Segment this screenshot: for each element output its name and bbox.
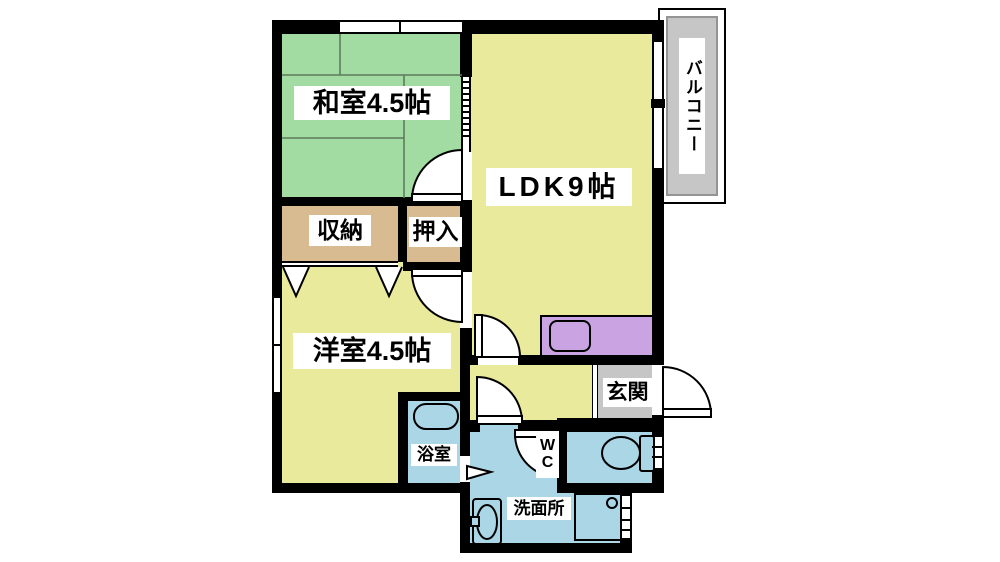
label-washitsu: 和室4.5帖 <box>294 86 450 120</box>
wall-washroom-bottom <box>460 543 632 553</box>
wall-closet-divider <box>398 198 407 262</box>
label-ldk: LDK9帖 <box>486 168 632 206</box>
label-oshiire: 押入 <box>409 217 462 247</box>
wall-hall-washroom-a <box>460 420 480 432</box>
kitchen-counter <box>540 315 654 357</box>
opening-ldk-hall-door <box>478 355 518 365</box>
genkan-threshold <box>592 362 598 418</box>
label-senmenjo: 洗面所 <box>507 497 571 520</box>
opening-washitsu-door <box>460 152 472 200</box>
wall-mid-vertical <box>460 362 470 543</box>
window-wc <box>652 437 664 468</box>
opening-bath-fold <box>460 456 470 482</box>
hallway <box>467 358 592 422</box>
window-youshitsu-left <box>272 298 282 392</box>
wall-wc-bottom <box>557 483 664 493</box>
window-washitsu-top <box>340 20 462 34</box>
window-ldk-balcony <box>652 42 664 168</box>
front-door <box>663 367 711 415</box>
room-bathroom <box>402 395 467 488</box>
label-balcony: バルコニー <box>679 38 705 174</box>
label-yokushitsu: 浴室 <box>411 444 457 466</box>
wall-bath-left <box>398 392 408 483</box>
opening-youshitsu-door <box>460 272 472 328</box>
room-wc <box>560 425 655 485</box>
front-door-leaf <box>663 409 711 417</box>
wall-oshiire-bottom <box>403 262 472 271</box>
label-youshitsu: 洋室4.5帖 <box>293 333 451 369</box>
label-shunou: 収納 <box>309 215 371 246</box>
wall-left <box>272 20 282 493</box>
opening-washitsu-ldk <box>461 139 471 152</box>
wall-wc-top <box>557 418 664 432</box>
wall-bottom-main <box>272 483 470 493</box>
window-washroom <box>620 496 632 538</box>
sliding-panel-washitsu-ldk <box>461 75 471 139</box>
label-wc: WC <box>536 431 559 478</box>
floorplan: 和室4.5帖 LDK9帖 洋室4.5帖 収納 押入 玄関 WC 浴室 洗面所 バ… <box>0 0 1000 562</box>
wall-youshitsu-east-stub <box>460 328 472 365</box>
wall-washitsu-bottom <box>272 197 472 206</box>
label-genkan: 玄関 <box>603 378 652 407</box>
shunou-bottom-track <box>282 261 398 267</box>
